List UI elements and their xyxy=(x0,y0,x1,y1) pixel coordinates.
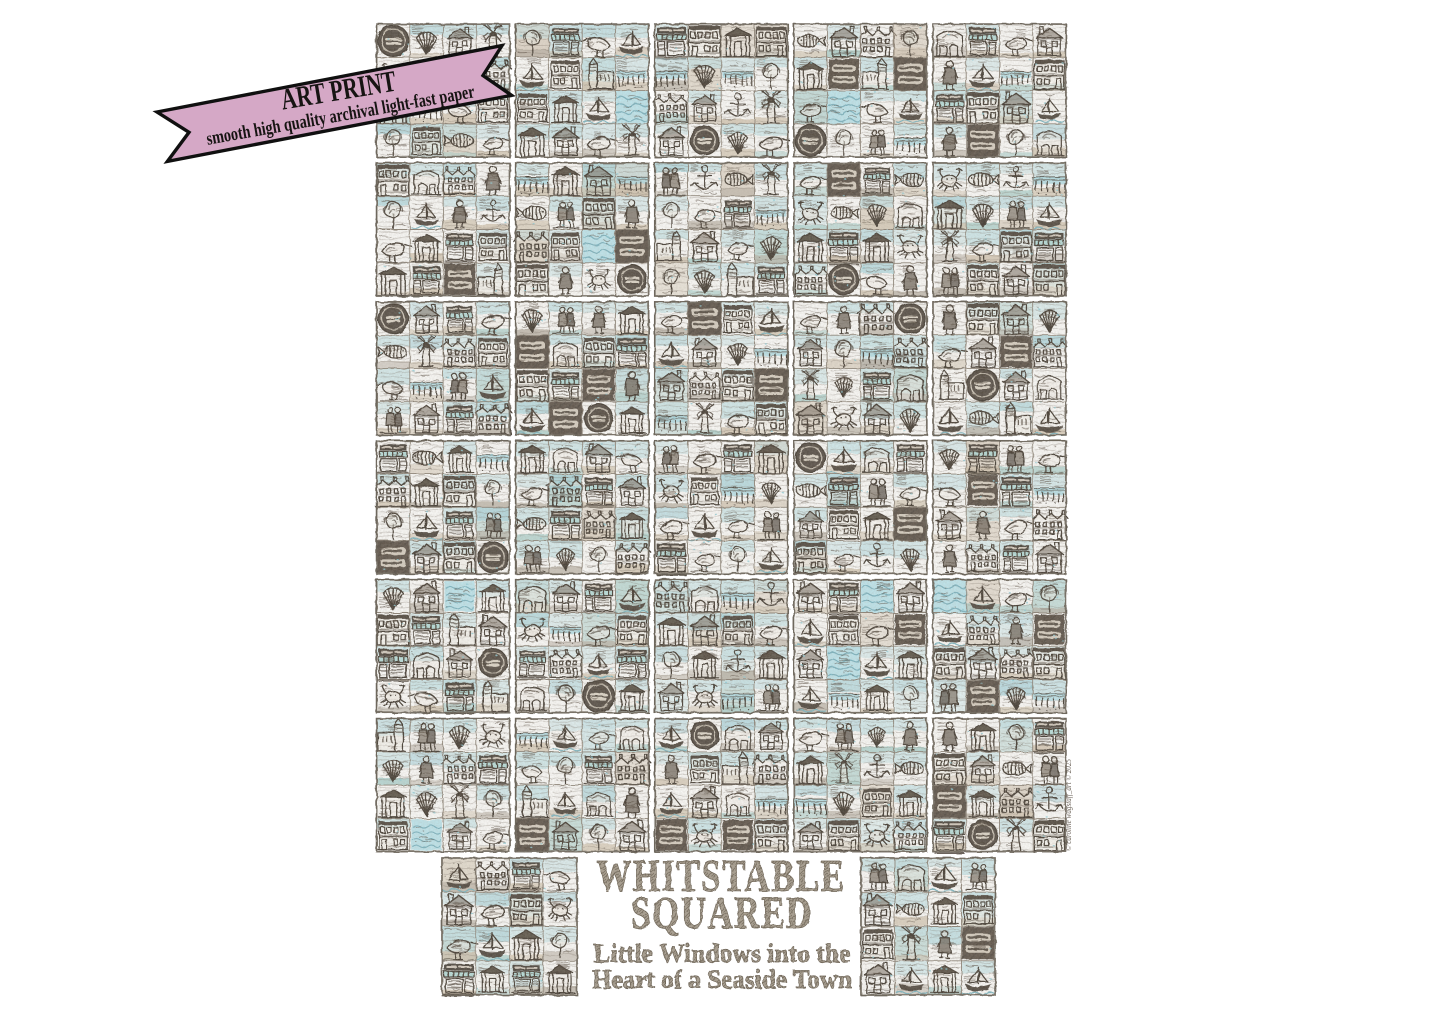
svg-text:SQUARED: SQUARED xyxy=(631,888,813,938)
svg-text:© caroline wagstaff_art © 2025: © caroline wagstaff_art © 2025 xyxy=(1064,759,1073,851)
svg-text:Heart of a Seaside Town: Heart of a Seaside Town xyxy=(592,965,853,994)
svg-text:Little Windows into the: Little Windows into the xyxy=(594,939,851,968)
